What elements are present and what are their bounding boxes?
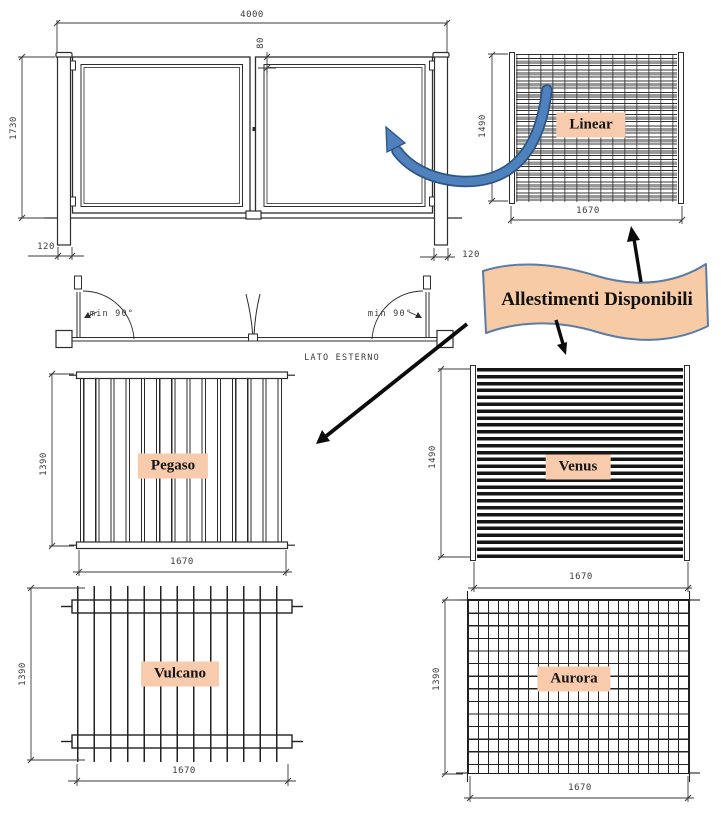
dim-linear-width: 1670 [576,206,600,216]
dim-post-left: 120 [37,242,55,252]
dim-gate-width: 4000 [240,10,264,20]
label-vulcano: Vulcano [141,662,219,687]
plan-side-label: LATO ESTERNO [304,353,380,363]
label-linear: Linear [556,113,625,138]
dim-linear-height: 1490 [478,114,488,138]
dim-gate-height: 1730 [9,116,19,140]
dim-venus-height: 1490 [428,445,438,469]
dim-aurora-width: 1670 [568,783,592,793]
arrow-to-linear [627,226,641,282]
label-venus: Venus [546,455,611,480]
dim-post-right: 120 [462,250,480,260]
gate-technical-drawing-page: 4000 1730 80 120 120 min 90° min 90° LAT… [0,0,721,823]
arrow-to-venus [556,320,567,355]
dim-vulcano-width: 1670 [172,766,196,776]
label-aurora: Aurora [537,667,610,692]
banner-label: Allestimenti Disponibili [501,289,693,311]
dim-pegaso-width: 1670 [170,557,194,567]
dim-venus-width: 1670 [569,572,593,582]
arrow-to-pegaso [316,324,467,444]
linear-left-stile [509,52,515,204]
dim-vulcano-height: 1390 [18,662,28,686]
label-pegaso: Pegaso [138,454,208,479]
linear-right-stile [678,52,684,204]
gate-front-drawing [44,53,462,246]
dim-aurora-height: 1390 [432,667,442,691]
dim-pegaso-height: 1390 [39,452,49,476]
venus-right-stile [684,365,690,561]
plan-angle-right: min 90° [368,309,412,319]
dim-gate-gap: 80 [256,37,266,49]
venus-left-stile [470,365,476,561]
plan-angle-left: min 90° [90,309,134,319]
